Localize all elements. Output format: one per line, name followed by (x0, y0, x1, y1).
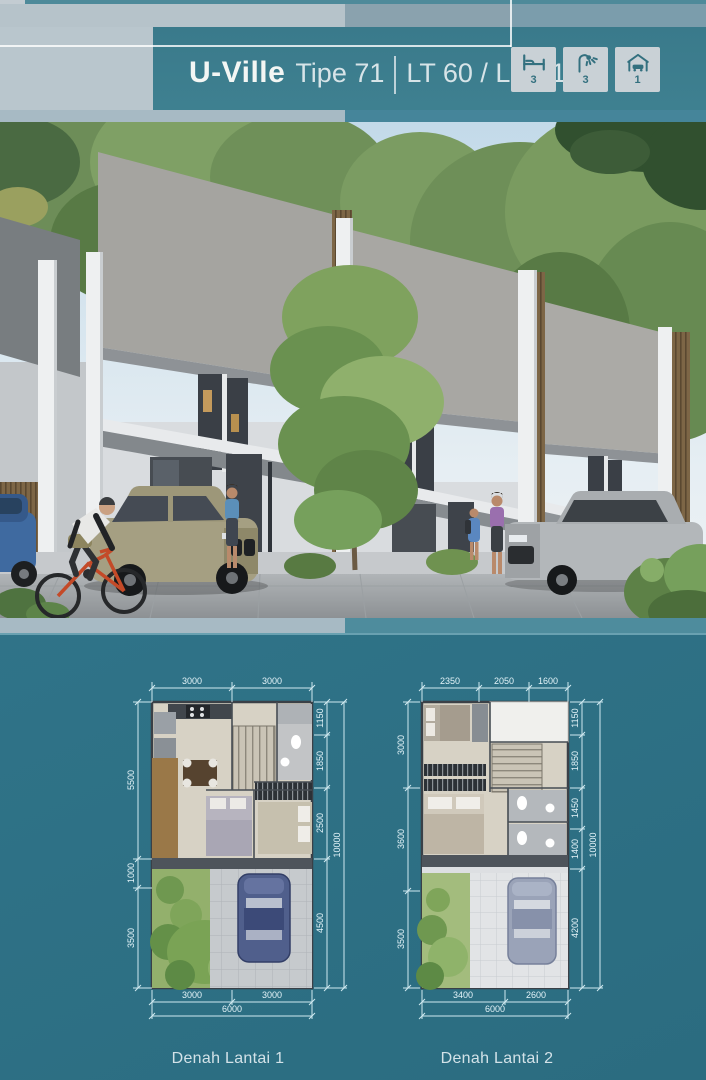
dim-label: 5500 (126, 770, 136, 790)
photo-underband-right (345, 618, 706, 633)
plan2-wardrobe-1 (424, 764, 486, 776)
dim-label: 2500 (315, 813, 325, 833)
dim-label: 1150 (315, 708, 325, 727)
plan1-wardrobe (255, 782, 312, 800)
dim-label: 6000 (485, 1004, 505, 1014)
plan2-stairs (492, 744, 542, 792)
dim-label: 2600 (526, 990, 546, 1000)
plan2-void (490, 702, 568, 742)
plan1-car (238, 874, 290, 962)
dim-label: 1850 (570, 751, 580, 771)
dim-label: 6000 (222, 1004, 242, 1014)
dim-label: 1450 (570, 798, 580, 818)
plan1-bed-2 (258, 802, 312, 854)
top-band-right (510, 4, 706, 27)
plan2-bed-main (424, 794, 484, 854)
dim-label: 3000 (182, 676, 202, 686)
feature-carport: 1 (615, 47, 660, 92)
feature-tiles: 3 3 (511, 47, 660, 92)
dim-label: 1850 (315, 751, 325, 771)
hero-photo (0, 122, 706, 618)
feature-bedrooms: 3 (511, 47, 556, 92)
dim-label: 4500 (315, 913, 325, 933)
header-bar: U-Ville Tipe 71 LT 60 / LB 71 3 (153, 27, 706, 122)
dim-label: 4200 (570, 918, 580, 938)
dim-label: 1000 (126, 863, 136, 883)
plan1-bed-1 (206, 796, 252, 856)
plan2-garden (416, 873, 470, 990)
plan2-bed-small (424, 705, 470, 741)
photo-underband-line (0, 633, 706, 635)
dim-label: 3000 (182, 990, 202, 1000)
plan2-terrace (422, 855, 568, 867)
dim-label: 10000 (332, 832, 342, 857)
plan1-wood-deck (152, 758, 178, 858)
title-type: Tipe 71 (295, 58, 384, 89)
photo-underband-left (0, 618, 345, 633)
page-title: U-Ville Tipe 71 LT 60 / LB 71 (153, 56, 566, 94)
bed-icon (520, 50, 548, 76)
plan2-walk (422, 867, 568, 873)
shower-icon (572, 50, 600, 76)
caption-floor-2: Denah Lantai 2 (397, 1050, 597, 1068)
carport-count: 1 (634, 75, 640, 86)
corner-block (0, 0, 25, 4)
dim-label: 2050 (494, 676, 514, 686)
decorative-line-vertical (510, 0, 512, 47)
floor-plan-2: 2350 2050 1600 3000 3600 3500 1150 1850 … (396, 676, 603, 1019)
decorative-line-horizontal (0, 45, 511, 47)
title-project: U-Ville (189, 56, 285, 90)
plan2-closet (472, 704, 488, 742)
dim-label: 1600 (538, 676, 558, 686)
header-underband-left (0, 110, 345, 122)
plan1-bathroom (277, 704, 312, 780)
plan2-car (508, 878, 556, 964)
floor-plan-1: 3000 3000 5500 1000 3500 1150 1850 2500 … (126, 676, 347, 1019)
plan2-wardrobe-2 (424, 779, 486, 791)
dim-label: 3000 (262, 990, 282, 1000)
dim-label: 3400 (453, 990, 473, 1000)
dim-label: 3500 (126, 928, 136, 948)
dim-label: 3000 (396, 735, 406, 755)
garage-icon (624, 50, 652, 76)
plan1-dining (183, 759, 218, 788)
brochure-page: U-Ville Tipe 71 LT 60 / LB 71 3 (0, 0, 706, 1080)
bathroom-count: 3 (582, 75, 588, 86)
plan1-stairs (233, 726, 275, 790)
top-band-left (0, 4, 345, 27)
dim-label: 3500 (396, 929, 406, 949)
title-divider (394, 56, 396, 94)
feature-bathrooms: 3 (563, 47, 608, 92)
header-underband-right (345, 110, 706, 122)
dim-label: 2350 (440, 676, 460, 686)
left-panel (0, 27, 153, 110)
dim-label: 1400 (570, 839, 580, 859)
plan1-terrace (152, 858, 312, 869)
dim-label: 10000 (588, 832, 598, 857)
bedroom-count: 3 (530, 75, 536, 86)
dim-label: 3000 (262, 676, 282, 686)
caption-floor-1: Denah Lantai 1 (128, 1050, 328, 1068)
dim-label: 3600 (396, 829, 406, 849)
top-band-mid (345, 4, 510, 27)
floor-plans: 3000 3000 5500 1000 3500 1150 1850 2500 … (0, 655, 706, 1045)
dim-label: 1150 (570, 708, 580, 727)
